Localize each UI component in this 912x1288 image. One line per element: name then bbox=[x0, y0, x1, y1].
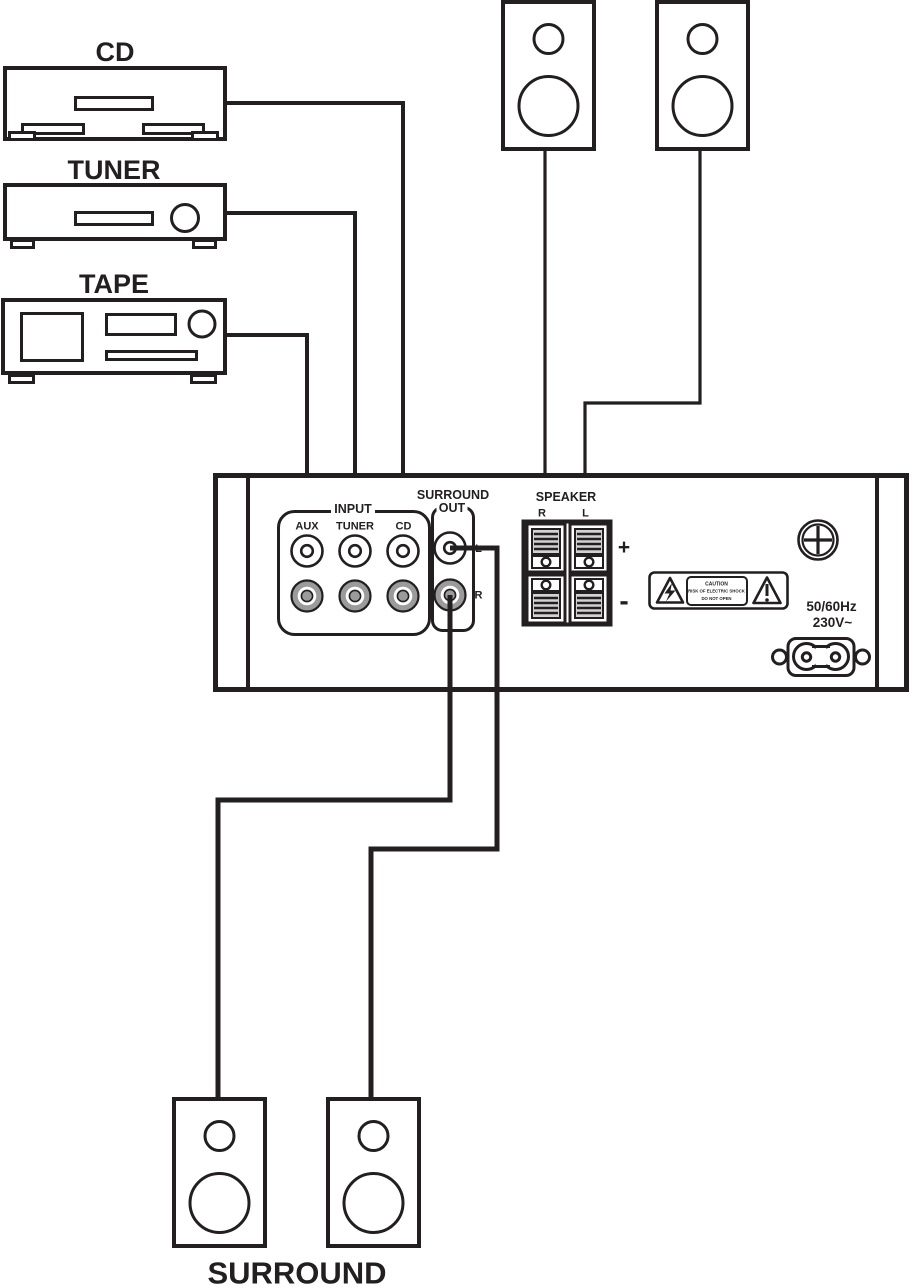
tape-window bbox=[107, 315, 176, 335]
cd-tray bbox=[76, 98, 153, 110]
cd-cable bbox=[227, 103, 403, 477]
plus-label: + bbox=[618, 536, 630, 559]
terminal-r-minus bbox=[527, 575, 565, 623]
cd-jack-label: CD bbox=[396, 521, 412, 533]
tape-label: TAPE bbox=[79, 269, 149, 299]
panel-screw bbox=[799, 521, 838, 560]
tuner-foot-right bbox=[194, 241, 216, 248]
aux-jack-white bbox=[292, 536, 323, 567]
cd-jack-white bbox=[388, 536, 419, 567]
surround-r-label: R bbox=[475, 590, 483, 602]
front-speaker-right bbox=[657, 2, 748, 149]
power-voltage: 230V~ bbox=[813, 615, 853, 630]
tuner-jack-white bbox=[340, 536, 371, 567]
tape-foot-left bbox=[10, 376, 34, 383]
diagram-canvas: CD TUNER TAPE INPUT bbox=[0, 0, 912, 1288]
tuner-jack-gray bbox=[340, 581, 371, 612]
amplifier-rear-panel: INPUT AUX TUNER CD SURROUND OUT L R SPEA… bbox=[216, 476, 907, 690]
front-right-speaker-wire bbox=[585, 149, 700, 477]
cd-player: CD bbox=[5, 37, 225, 140]
cd-foot-left bbox=[10, 133, 35, 140]
tuner-jack-label: TUNER bbox=[336, 521, 374, 533]
tape-foot-right bbox=[192, 376, 216, 383]
aux-jack-gray bbox=[292, 581, 323, 612]
caution-line2: RISK OF ELECTRIC SHOCK bbox=[688, 589, 746, 594]
tuner-device: TUNER bbox=[5, 155, 225, 248]
audio-wiring-diagram: CD TUNER TAPE INPUT bbox=[0, 0, 912, 1288]
minus-label: - bbox=[619, 585, 628, 616]
tuner-cable bbox=[227, 213, 355, 477]
cd-foot-right bbox=[193, 133, 218, 140]
caution-line1: CAUTION bbox=[705, 582, 728, 588]
surround-speaker-right bbox=[328, 1099, 419, 1246]
caution-label: CAUTION RISK OF ELECTRIC SHOCK DO NOT OP… bbox=[650, 573, 788, 609]
speaker-l-label: L bbox=[582, 508, 589, 520]
terminal-l-plus bbox=[570, 524, 608, 572]
surround-speaker-left bbox=[174, 1099, 265, 1246]
tuner-foot-left bbox=[12, 241, 34, 248]
surround-speakers-label: SURROUND bbox=[207, 1256, 386, 1288]
aux-jack-label: AUX bbox=[295, 521, 319, 533]
tape-deck: TAPE bbox=[3, 269, 225, 383]
cd-label: CD bbox=[96, 37, 135, 67]
tuner-display bbox=[76, 213, 153, 225]
tuner-label: TUNER bbox=[68, 155, 161, 185]
tape-cable bbox=[227, 335, 307, 477]
surround-out-label-line2: OUT bbox=[439, 501, 466, 515]
terminal-r-plus bbox=[527, 524, 565, 572]
cd-jack-gray bbox=[388, 581, 419, 612]
tape-cassette-door bbox=[22, 314, 83, 361]
terminal-l-minus bbox=[570, 575, 608, 623]
caution-line3: DO NOT OPEN bbox=[701, 596, 731, 601]
front-speaker-left bbox=[503, 2, 594, 149]
input-group-label: INPUT bbox=[334, 502, 372, 516]
speaker-r-label: R bbox=[538, 508, 546, 520]
power-frequency: 50/60Hz bbox=[806, 599, 857, 614]
exclamation-dot-icon bbox=[765, 598, 769, 602]
speaker-group-label: SPEAKER bbox=[536, 490, 596, 504]
tape-slot bbox=[107, 352, 197, 360]
ac-inlet bbox=[773, 639, 870, 676]
